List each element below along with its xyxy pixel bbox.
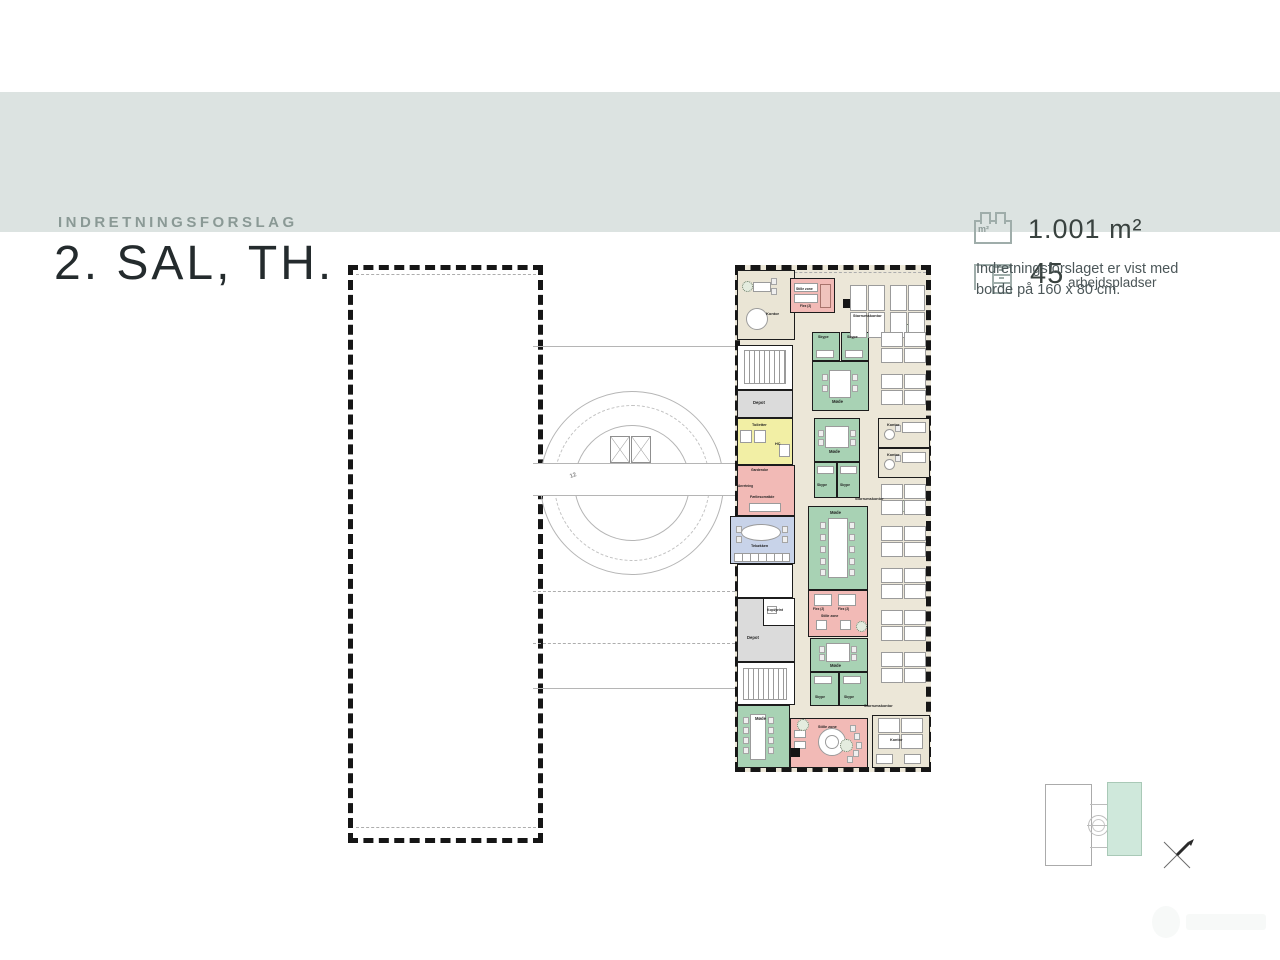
desk-furniture: [902, 452, 926, 463]
room-label: Skype: [817, 484, 827, 487]
key-plan-left-building: [1045, 784, 1092, 866]
chair-furniture: [736, 526, 742, 533]
desk-furniture: [904, 500, 926, 515]
desk-furniture: [816, 620, 827, 630]
room-label: Kontor: [766, 312, 779, 316]
desk-furniture: [904, 584, 926, 599]
room-label: Møde: [832, 400, 843, 404]
area-icon-unit: m²: [978, 224, 989, 234]
area-plan-icon: m²: [974, 212, 1012, 244]
chair-furniture: [854, 733, 860, 740]
chair-furniture: [847, 756, 853, 763]
chair-furniture: [771, 278, 777, 285]
core-dashed-line: [533, 643, 735, 644]
kitchen-counter-furniture: [734, 553, 790, 562]
chair-furniture: [850, 430, 856, 437]
desk-furniture: [794, 294, 818, 303]
room-label: Kontor: [887, 424, 899, 428]
note-text: Indretningsforslaget er vist med borde p…: [976, 259, 1192, 301]
chair-furniture: [736, 536, 742, 543]
desk-furniture: [816, 350, 834, 358]
key-plan-highlighted-wing: [1107, 782, 1142, 856]
chair-furniture: [820, 534, 826, 541]
room-void-room: [737, 564, 793, 598]
desk-furniture: [904, 374, 926, 389]
chair-furniture: [818, 439, 824, 446]
room-label: Storrumskontor: [853, 315, 882, 319]
chair-furniture: [820, 558, 826, 565]
room-label: Møde: [830, 511, 841, 515]
area-icon-notch: [980, 212, 991, 224]
core-dashed-line: [356, 827, 536, 828]
desk-furniture: [904, 542, 926, 557]
desk-furniture: [881, 332, 903, 347]
desk-furniture: [814, 676, 832, 684]
chair-furniture: [851, 646, 857, 653]
room-label: Fællesområde: [750, 496, 774, 500]
room-label: Flex (2): [838, 608, 849, 611]
room-label: Flex (2): [800, 305, 811, 308]
chair-furniture: [768, 737, 774, 744]
desk-furniture: [826, 643, 850, 662]
desk-furniture: [904, 754, 921, 764]
desk-furniture: [876, 754, 893, 764]
sofa-furniture: [820, 284, 831, 308]
chair-furniture: [743, 737, 749, 744]
room-label: Kontor: [890, 739, 902, 743]
desk-furniture: [902, 422, 926, 433]
desk-furniture: [881, 568, 903, 583]
desk-furniture: [794, 730, 806, 738]
room-label: Tekøkken: [751, 545, 768, 549]
room-depot-1: [737, 390, 793, 418]
north-arrow-icon: [1158, 836, 1196, 874]
desk-furniture: [825, 426, 849, 448]
building-left-raw-space: [348, 265, 543, 843]
watermark: [1186, 914, 1266, 930]
room-label: Møde: [829, 450, 840, 454]
room-label: Skype: [840, 484, 850, 487]
desk-furniture: [904, 626, 926, 641]
desk-furniture: [881, 500, 903, 515]
room-label: Skype: [844, 696, 854, 699]
chair-furniture: [743, 747, 749, 754]
chair-furniture: [768, 717, 774, 724]
desk-furniture: [828, 518, 848, 578]
desk-furniture: [890, 285, 907, 311]
core-line: [533, 688, 735, 689]
chair-furniture: [853, 750, 859, 757]
chair-furniture: [849, 522, 855, 529]
room-label: Toiletter: [752, 424, 767, 428]
desk-furniture: [881, 610, 903, 625]
room-label: Stille zone: [818, 726, 837, 730]
desk-furniture: [868, 285, 885, 311]
header-band: INDRETNINGSFORSLAG 2. SAL, TH. m² 1.001 …: [0, 92, 1280, 232]
room-label: Møde: [755, 717, 766, 721]
desk-furniture: [845, 350, 863, 358]
desk-furniture: [838, 594, 856, 606]
core-dashed-line: [533, 591, 735, 592]
desk-furniture: [904, 652, 926, 667]
room-label: Kontor: [887, 454, 899, 458]
floor-plan: KontorStille zoneFlex (2)StorrumskontorS…: [348, 258, 934, 858]
room-label: Storrumskontor: [855, 498, 884, 502]
stairs-furniture: [744, 350, 786, 384]
desk-furniture: [908, 285, 925, 311]
round-table-furniture: [884, 459, 895, 470]
desk-furniture: [904, 332, 926, 347]
desk-furniture: [901, 734, 923, 749]
chair-furniture: [819, 654, 825, 661]
desk-furniture: [817, 466, 834, 474]
chair-furniture: [768, 747, 774, 754]
desk-furniture: [881, 526, 903, 541]
desk-furniture: [881, 348, 903, 363]
room-label: Kopi/print: [767, 609, 783, 612]
chair-furniture: [822, 385, 828, 392]
desk-furniture: [881, 584, 903, 599]
chair-furniture: [771, 288, 777, 295]
room-label: Skype: [847, 336, 858, 340]
chair-furniture: [782, 536, 788, 543]
plant-icon: [840, 739, 853, 752]
room-label: Garderobe: [751, 469, 768, 472]
round-table-furniture: [746, 308, 768, 330]
chair-furniture: [852, 385, 858, 392]
chair-furniture: [743, 727, 749, 734]
desk-furniture: [850, 285, 867, 311]
desk-furniture: [779, 444, 790, 457]
desk-furniture: [843, 676, 861, 684]
desk-furniture: [904, 526, 926, 541]
key-plan-core-line: [1087, 825, 1109, 826]
desk-furniture: [881, 542, 903, 557]
eyebrow-label: INDRETNINGSFORSLAG: [58, 214, 298, 231]
core-line: [533, 346, 735, 347]
desk-furniture: [749, 503, 781, 512]
page-title: 2. SAL, TH.: [54, 236, 334, 291]
chair-furniture: [822, 374, 828, 381]
desk-furniture: [840, 620, 851, 630]
room-label: Flex (2): [813, 608, 824, 611]
desk-furniture: [881, 374, 903, 389]
desk-furniture: [904, 348, 926, 363]
chair-furniture: [850, 439, 856, 446]
corridor-bridge: [533, 463, 735, 496]
chair-furniture: [850, 725, 856, 732]
room-label: Storrumskontor: [864, 705, 893, 709]
oval-table-furniture: [741, 524, 781, 541]
plant-icon: [797, 719, 809, 731]
chair-furniture: [851, 654, 857, 661]
desk-furniture: [740, 430, 752, 443]
desk-furniture: [881, 390, 903, 405]
stairs-furniture: [743, 668, 787, 700]
room-label: Depot: [753, 401, 765, 405]
desk-furniture: [753, 282, 771, 292]
plant-icon: [856, 621, 867, 632]
desk-furniture: [904, 668, 926, 683]
chair-furniture: [856, 742, 862, 749]
chair-furniture: [820, 569, 826, 576]
chair-furniture: [849, 558, 855, 565]
chair-furniture: [768, 727, 774, 734]
chair-furniture: [849, 569, 855, 576]
x-marked-box: [610, 436, 630, 463]
area-value: 1.001 m²: [1028, 214, 1143, 245]
desk-furniture: [881, 652, 903, 667]
room-label: Stille zone: [796, 288, 813, 291]
chair-furniture: [743, 717, 749, 724]
chair-furniture: [818, 430, 824, 437]
desk-furniture: [904, 610, 926, 625]
desk-furniture: [814, 594, 832, 606]
chair-furniture: [849, 534, 855, 541]
core-dashed-line: [356, 274, 536, 275]
key-plan: [1045, 778, 1143, 870]
desk-furniture: [878, 718, 900, 733]
room-label: Skype: [815, 696, 825, 699]
wall-block: [791, 748, 800, 757]
room-label: Depot: [747, 636, 759, 640]
round-table-furniture: [884, 429, 895, 440]
round-table-furniture: [825, 735, 839, 749]
desk-furniture: [829, 370, 851, 398]
plant-icon: [742, 281, 753, 292]
chair-furniture: [819, 646, 825, 653]
desk-furniture: [901, 718, 923, 733]
desk-furniture: [904, 484, 926, 499]
desk-furniture: [840, 466, 857, 474]
room-label: HC: [775, 443, 780, 447]
desk-furniture: [881, 626, 903, 641]
desk-furniture: [881, 668, 903, 683]
chair-furniture: [852, 374, 858, 381]
chair-furniture: [849, 546, 855, 553]
room-label: Anretning: [738, 485, 753, 488]
desk-furniture: [881, 484, 903, 499]
chair-furniture: [820, 546, 826, 553]
x-marked-box: [631, 436, 651, 463]
room-label: Stille zone: [821, 615, 838, 619]
room-label: Møde: [830, 664, 841, 668]
desk-furniture: [754, 430, 766, 443]
room-label: Skype: [818, 336, 829, 340]
desk-furniture: [904, 568, 926, 583]
desk-furniture: [904, 390, 926, 405]
area-icon-notch: [995, 212, 1006, 224]
chair-furniture: [782, 526, 788, 533]
chair-furniture: [820, 522, 826, 529]
watermark: [1152, 906, 1180, 938]
